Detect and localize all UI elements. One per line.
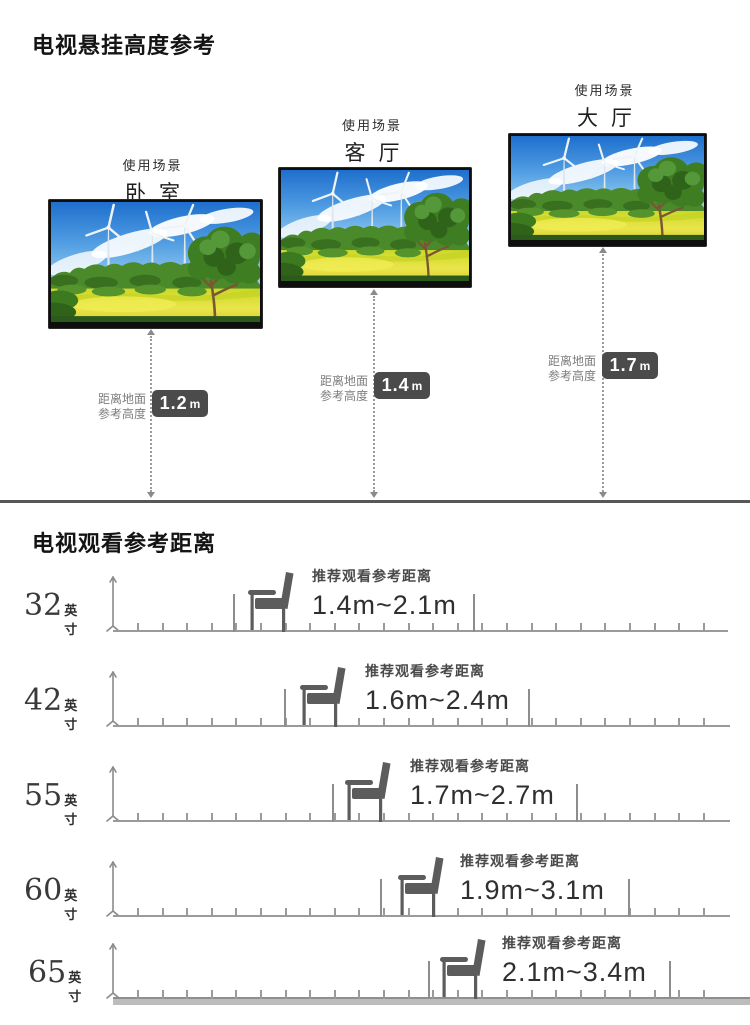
tv-screen-image [51, 202, 260, 322]
tv-screen-image [281, 170, 469, 281]
ruler-start-marker-icon [105, 941, 121, 999]
arrow-down-icon [370, 492, 378, 498]
tv-size-label: 32 英寸 [24, 588, 77, 638]
ruler-start-marker-icon [105, 669, 121, 727]
tv-size-label: 65 英寸 [28, 955, 81, 1005]
scene-label-livingroom: 使用场景 客厅 [278, 115, 466, 167]
height-caption-livingroom: 距离地面 参考高度 [282, 374, 368, 404]
chair-icon [246, 572, 300, 632]
recommend-block: 推荐观看参考距离 1.7m~2.7m [410, 756, 555, 811]
height-badge-bedroom: 1.2 m [152, 390, 208, 417]
arrow-up-icon [147, 329, 155, 335]
range-tick-min [233, 594, 235, 632]
chair-icon [298, 667, 352, 727]
scene-label-hall: 使用场景 大厅 [508, 80, 701, 132]
tv-screen-image [511, 136, 704, 240]
ruler-baseline [113, 820, 730, 822]
arrow-down-icon [599, 492, 607, 498]
section-divider [0, 500, 750, 503]
chair-icon [396, 857, 450, 917]
section1-title: 电视悬挂高度参考 [32, 28, 216, 60]
infographic-canvas: 电视悬挂高度参考 使用场景 卧室 距离地面 参考高度 1.2 m 使用场景 客厅… [0, 0, 750, 1025]
tv-size-label: 60 英寸 [24, 873, 77, 923]
ruler-start-marker-icon [105, 764, 121, 822]
arrow-down-icon [147, 492, 155, 498]
tv-livingroom [278, 167, 472, 288]
height-caption-hall: 距离地面 参考高度 [510, 354, 596, 384]
range-tick-max [669, 961, 671, 999]
recommend-block: 推荐观看参考距离 1.9m~3.1m [460, 851, 605, 906]
arrow-up-icon [370, 289, 378, 295]
chair-icon [438, 939, 492, 999]
height-caption-bedroom: 距离地面 参考高度 [60, 392, 146, 422]
scene-caption: 使用场景 [48, 155, 257, 174]
range-tick-min [332, 784, 334, 822]
ruler-baseline [113, 630, 728, 632]
chair-icon [343, 762, 397, 822]
range-tick-max [576, 784, 578, 822]
range-tick-min [380, 879, 382, 917]
scene-caption: 使用场景 [278, 115, 466, 134]
ruler-start-marker-icon [105, 574, 121, 632]
range-tick-min [428, 961, 430, 999]
ruler-baseline [113, 725, 730, 727]
tv-hall [508, 133, 707, 247]
range-tick-max [473, 594, 475, 632]
recommend-block: 推荐观看参考距离 1.6m~2.4m [365, 661, 510, 716]
height-badge-livingroom: 1.4 m [374, 372, 430, 399]
scene-caption: 使用场景 [508, 80, 701, 99]
range-tick-min [284, 689, 286, 727]
tv-size-label: 42 英寸 [24, 683, 77, 733]
tv-bedroom [48, 199, 263, 329]
arrow-up-icon [599, 247, 607, 253]
height-badge-hall: 1.7 m [602, 352, 658, 379]
section2-title: 电视观看参考距离 [32, 526, 216, 558]
tv-size-label: 55 英寸 [24, 778, 77, 828]
recommend-block: 推荐观看参考距离 1.4m~2.1m [312, 566, 457, 621]
range-tick-max [528, 689, 530, 727]
ruler-start-marker-icon [105, 859, 121, 917]
scene-name: 大厅 [508, 102, 701, 132]
scene-name: 客厅 [278, 137, 466, 167]
range-tick-max [628, 879, 630, 917]
recommend-block: 推荐观看参考距离 2.1m~3.4m [502, 933, 647, 988]
